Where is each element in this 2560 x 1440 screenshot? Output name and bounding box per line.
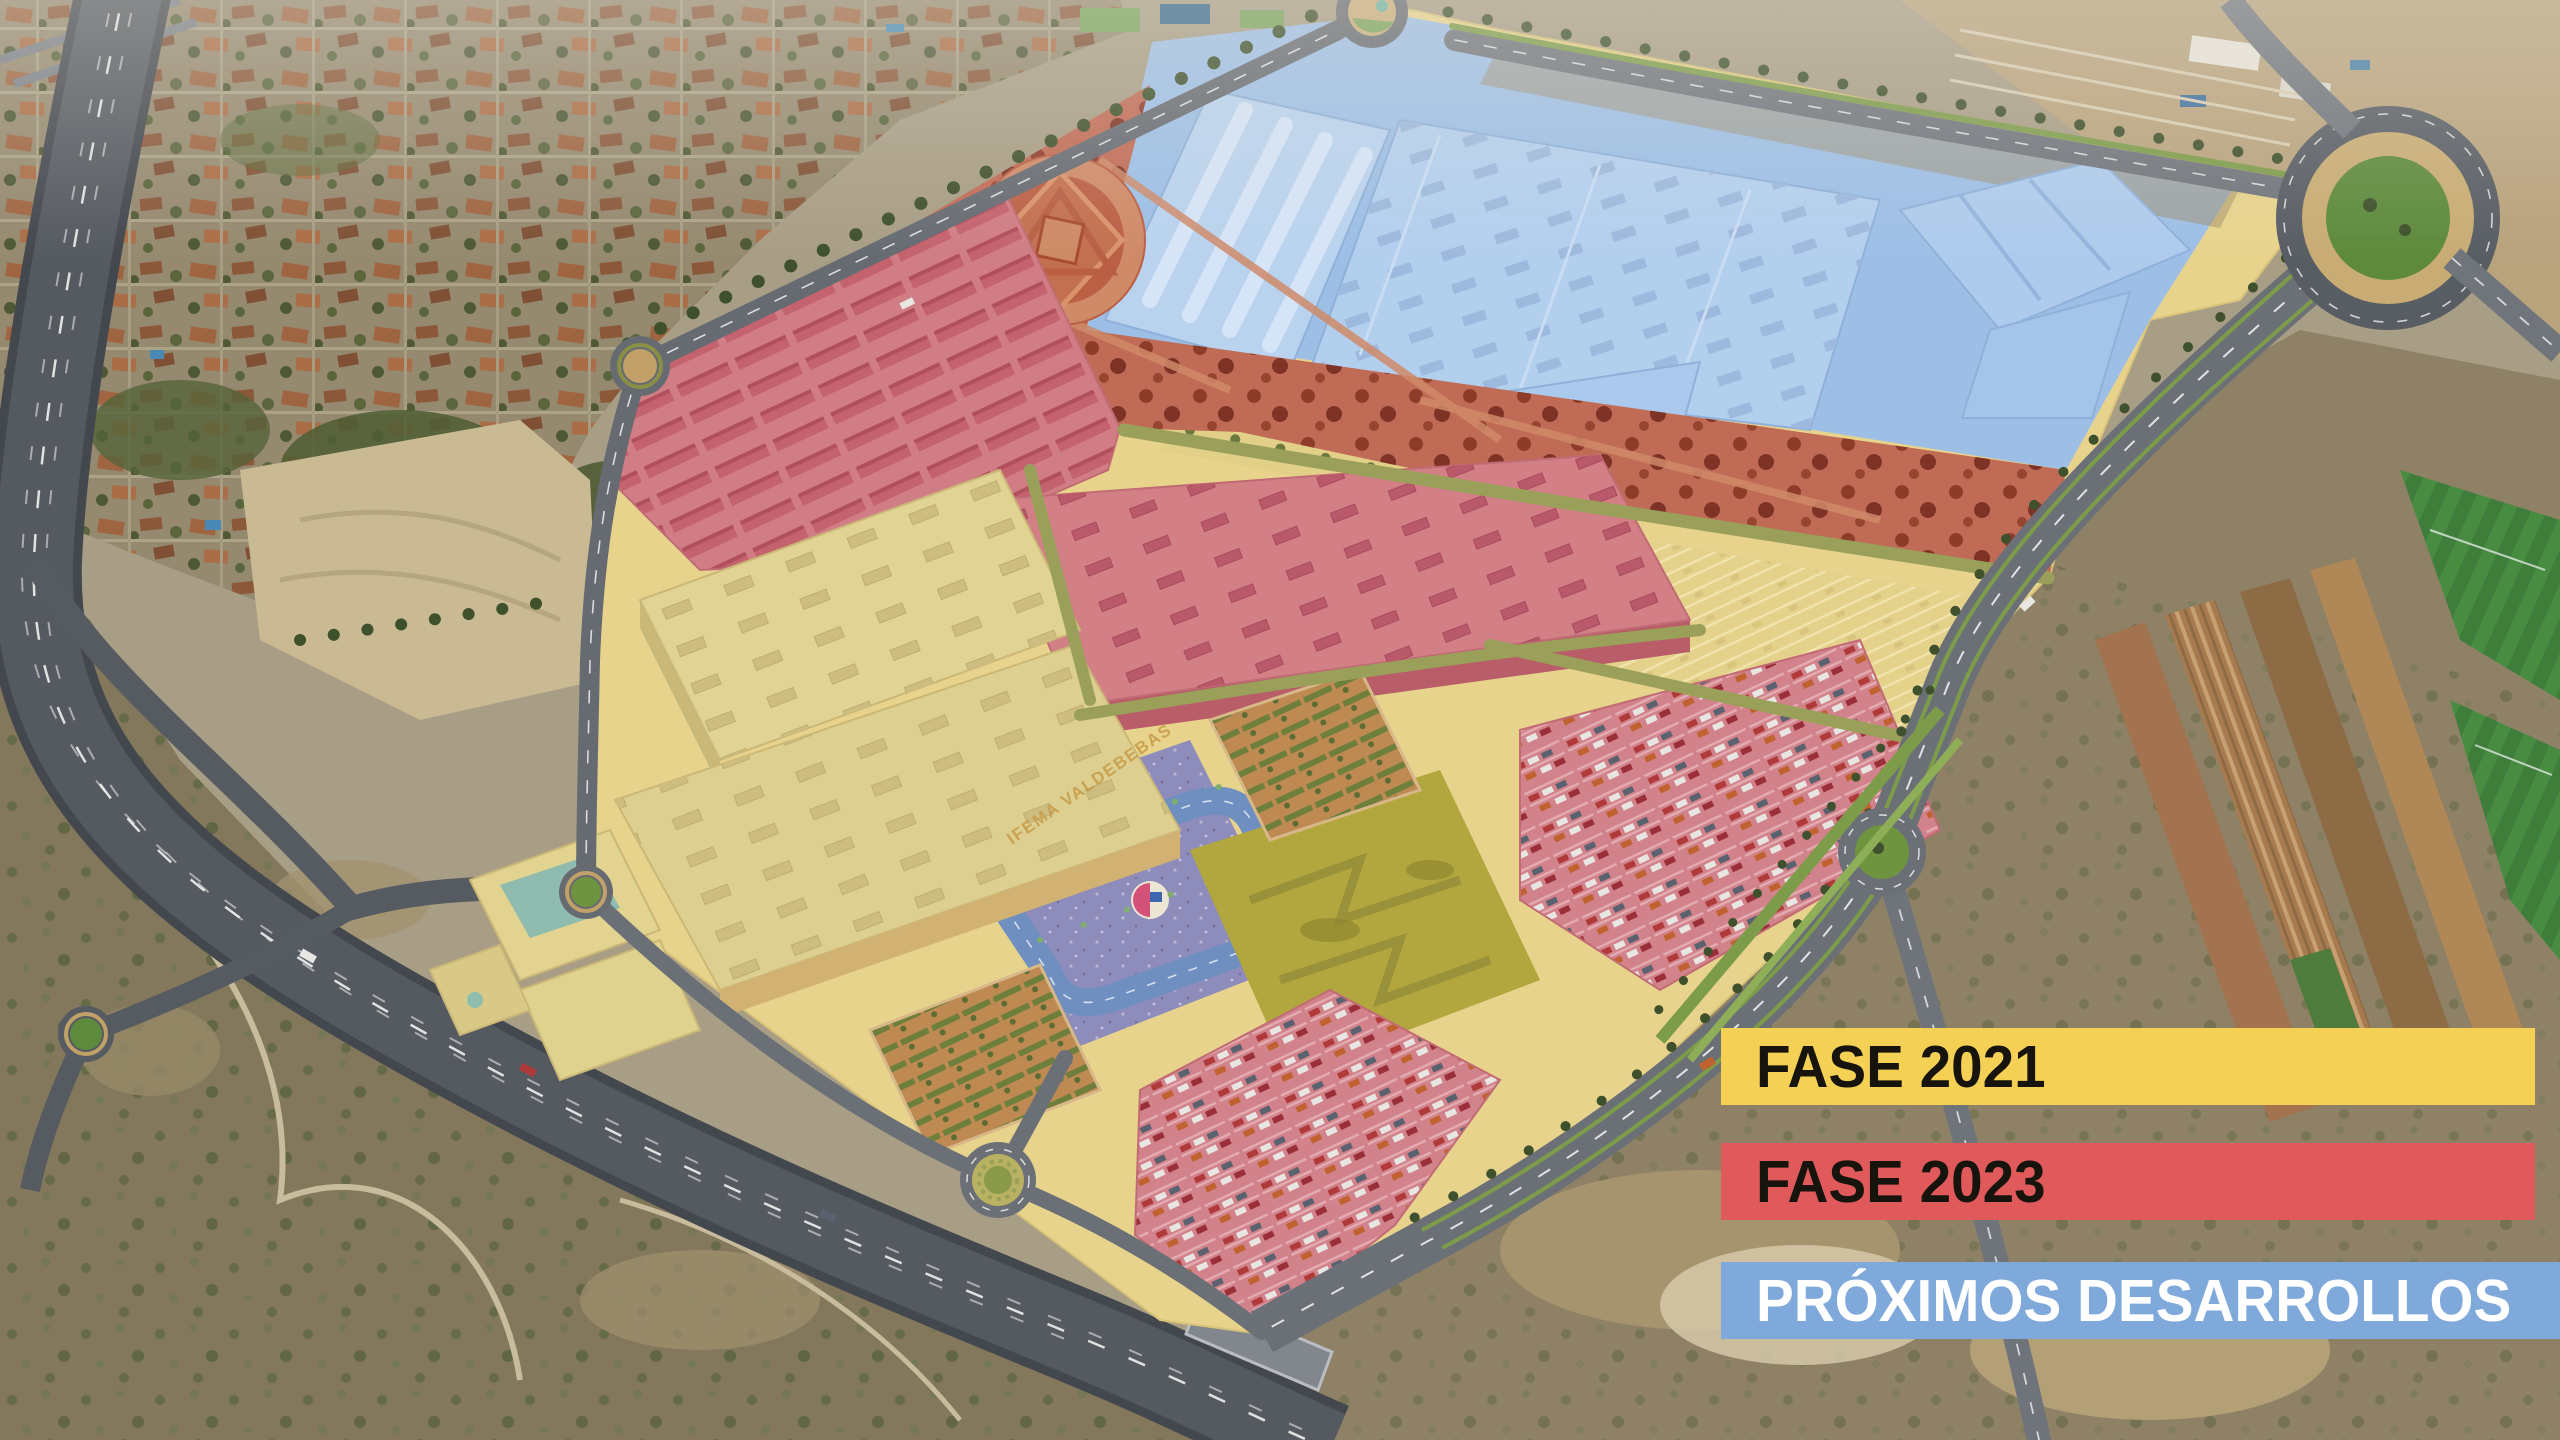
aerial-map: IFEMA VALDEBEBAS	[0, 0, 2560, 1440]
roundabout-west	[559, 865, 613, 919]
excavation	[1660, 1245, 1940, 1365]
roundabout-northwest	[610, 336, 670, 396]
pool	[205, 520, 221, 530]
aerial-masterplan-render: IFEMA VALDEBEBAS	[0, 0, 2560, 1440]
roundabout-south-interior	[960, 1142, 1036, 1218]
atmospheric-haze	[0, 0, 2560, 260]
roundabout-scrub	[58, 1006, 114, 1062]
